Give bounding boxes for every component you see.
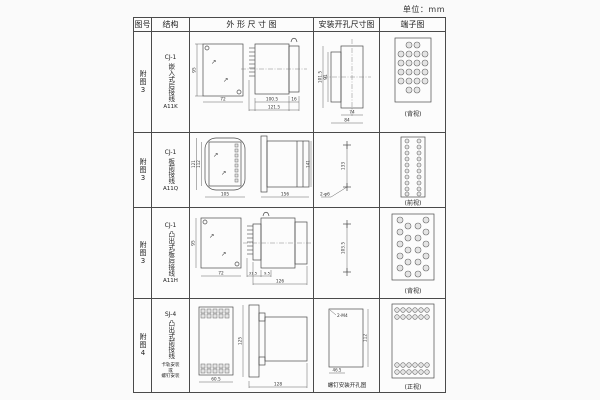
terminal-diagram: (背视) xyxy=(381,208,445,298)
dim-label: 9.5 xyxy=(263,271,270,276)
fig-no-label: 附图3 xyxy=(139,70,146,95)
structure-code: A11K xyxy=(163,104,177,110)
header-structure: 结构 xyxy=(152,18,190,32)
install-cell: 133 2-φ6 xyxy=(314,133,380,208)
structure-desc: 嵌入式后接线 xyxy=(167,63,174,102)
terminal-circles xyxy=(397,217,429,277)
dim-label: 84 xyxy=(344,118,350,124)
outline-drawing: ↗ ↗ 121 112 105 xyxy=(191,133,313,207)
terminal-cell: (正视) xyxy=(380,299,446,393)
terminal-cell: (背视) xyxy=(380,208,446,299)
outline-drawing: ↗ ↗ 95 72 xyxy=(191,208,313,298)
outline-drawing: ↗ ↗ 95 72 xyxy=(191,32,313,132)
fig-no-cell: 附图3 xyxy=(134,208,152,299)
dim-label: 2-φ6 xyxy=(320,192,330,198)
dim-label: 46.5 xyxy=(332,368,341,373)
fig-no-cell: 附图3 xyxy=(134,32,152,133)
dim-label: 103.5 xyxy=(340,242,346,255)
outline-drawing: 60.5 125 128 xyxy=(191,299,313,392)
side-view: 156 141 xyxy=(261,136,311,198)
structure-desc: 板前接线 xyxy=(167,158,174,184)
model-label: CJ-1 xyxy=(165,149,177,156)
side-view: 31.5 9.5 126 xyxy=(243,212,311,285)
outline-cell: ↗ ↗ 121 112 105 xyxy=(190,133,314,208)
front-view: ↗ ↗ 121 112 105 xyxy=(191,138,245,198)
table-row: 附图3 CJ-1 凸出式板后接线 A11H ↗ ↗ 95 xyxy=(134,208,446,299)
model-label: CJ-1 xyxy=(165,54,177,61)
install-caption: 螺钉安装开孔图 xyxy=(327,381,366,389)
dim-label: 72 xyxy=(220,97,226,103)
dim-label: 133 xyxy=(340,162,346,170)
document-page: 单位：mm 图号 结构 外 形 尺 寸 图 安装开孔尺寸图 端子图 附图3 CJ… xyxy=(0,0,600,400)
terminal-circles xyxy=(405,139,421,196)
arrow-ne-icon: ↗ xyxy=(211,58,216,66)
dim-label: 156 xyxy=(280,192,288,198)
dim-label: 91 xyxy=(322,74,328,80)
arrow-ne-icon: ↗ xyxy=(221,169,226,177)
terminal-view-caption: (背视) xyxy=(404,110,421,118)
dim-label: 112 xyxy=(196,160,201,168)
arrow-ne-icon: ↗ xyxy=(221,250,226,258)
dim-label: 141 xyxy=(305,160,310,168)
dim-label: 72 xyxy=(218,271,224,277)
header-outline: 外 形 尺 寸 图 xyxy=(190,18,314,32)
model-label: SJ-4 xyxy=(165,311,176,318)
dim-label: 16 xyxy=(291,97,297,103)
mounting-note-line: 卡轨安装 xyxy=(162,363,180,369)
terminal-circles xyxy=(398,42,428,93)
unit-label: 单位：mm xyxy=(133,4,445,15)
install-drawing: 2-M4 112 46.5 螺钉安装开孔图 xyxy=(315,299,379,392)
install-drawing: 103.5 xyxy=(315,208,379,298)
dim-label: 121.5 xyxy=(267,105,280,111)
outline-cell: ↗ ↗ 95 72 xyxy=(190,208,314,299)
install-cell: 101.5 91 74 84 xyxy=(314,32,380,133)
dim-label: 125 xyxy=(237,337,243,345)
side-view: 125 128 xyxy=(237,305,307,388)
dim-label: 31.5 xyxy=(248,271,257,276)
terminal-view-caption: (背视) xyxy=(404,287,421,295)
terminal-view-caption: (正视) xyxy=(404,383,421,391)
front-view: 60.5 xyxy=(199,307,233,383)
arrow-ne-icon: ↗ xyxy=(213,151,218,159)
table-row: 附图3 CJ-1 嵌入式后接线 A11K ↗ ↗ xyxy=(134,32,446,133)
spec-table: 图号 结构 外 形 尺 寸 图 安装开孔尺寸图 端子图 附图3 CJ-1 嵌入式… xyxy=(133,17,446,393)
mounting-note: 卡轨安装 或 螺钉安装 xyxy=(162,363,180,381)
structure-code: A11Q xyxy=(163,186,178,192)
fig-no-label: 附图3 xyxy=(139,241,146,266)
arrow-ne-icon: ↗ xyxy=(223,76,228,84)
dim-label: 95 xyxy=(191,240,197,246)
fig-no-label: 附图3 xyxy=(139,158,146,183)
dim-label: 112 xyxy=(362,334,368,342)
dim-label: 2-M4 xyxy=(337,313,348,319)
table-row: 附图3 CJ-1 板前接线 A11Q xyxy=(134,133,446,208)
dim-label: 100.5 xyxy=(265,97,278,103)
fig-no-cell: 附图3 xyxy=(134,133,152,208)
structure-desc: 凸出式前接线 xyxy=(167,320,174,359)
header-row: 图号 结构 外 形 尺 寸 图 安装开孔尺寸图 端子图 xyxy=(134,18,446,32)
terminal-diagram: (前视) xyxy=(381,133,445,207)
structure-desc: 凸出式板后接线 xyxy=(167,231,174,277)
dim-label: 74 xyxy=(349,110,355,116)
header-fig-no: 图号 xyxy=(134,18,152,32)
structure-cell: SJ-4 凸出式前接线 卡轨安装 或 螺钉安装 xyxy=(152,299,190,393)
front-view: ↗ ↗ 95 72 xyxy=(191,218,241,277)
dim-label: 128 xyxy=(273,382,281,388)
terminal-view-caption: (前视) xyxy=(404,199,421,207)
terminal-diagram: (正视) xyxy=(381,299,445,392)
fig-no-label: 附图4 xyxy=(139,333,146,358)
arrow-ne-icon: ↗ xyxy=(209,232,214,240)
install-cell: 103.5 xyxy=(314,208,380,299)
terminal-cell: (前视) xyxy=(380,133,446,208)
fig-no-cell: 附图4 xyxy=(134,299,152,393)
outline-cell: 60.5 125 128 xyxy=(190,299,314,393)
install-drawing: 133 2-φ6 xyxy=(315,133,379,207)
dim-label: 95 xyxy=(191,67,197,73)
structure-cell: CJ-1 板前接线 A11Q xyxy=(152,133,190,208)
terminal-circles xyxy=(394,308,429,375)
dim-label: 126 xyxy=(275,279,283,285)
mounting-note-line: 螺钉安装 xyxy=(162,374,180,380)
header-terminal: 端子图 xyxy=(380,18,446,32)
dim-label: 60.5 xyxy=(211,377,221,383)
model-label: CJ-1 xyxy=(165,222,177,229)
dim-label: 101.5 xyxy=(317,71,323,84)
structure-cell: CJ-1 凸出式板后接线 A11H xyxy=(152,208,190,299)
outline-cell: ↗ ↗ 95 72 xyxy=(190,32,314,133)
table-row: 附图4 SJ-4 凸出式前接线 卡轨安装 或 螺钉安装 xyxy=(134,299,446,393)
install-drawing: 101.5 91 74 84 xyxy=(315,32,379,132)
header-install: 安装开孔尺寸图 xyxy=(314,18,380,32)
structure-code: A11H xyxy=(163,278,178,284)
side-view: 100.5 16 121.5 xyxy=(241,38,307,111)
terminal-diagram: (背视) xyxy=(381,32,445,132)
terminal-cell: (背视) xyxy=(380,32,446,133)
front-view: ↗ ↗ 95 72 xyxy=(191,44,243,103)
install-cell: 2-M4 112 46.5 螺钉安装开孔图 xyxy=(314,299,380,393)
dim-label: 105 xyxy=(220,192,228,198)
structure-cell: CJ-1 嵌入式后接线 A11K xyxy=(152,32,190,133)
